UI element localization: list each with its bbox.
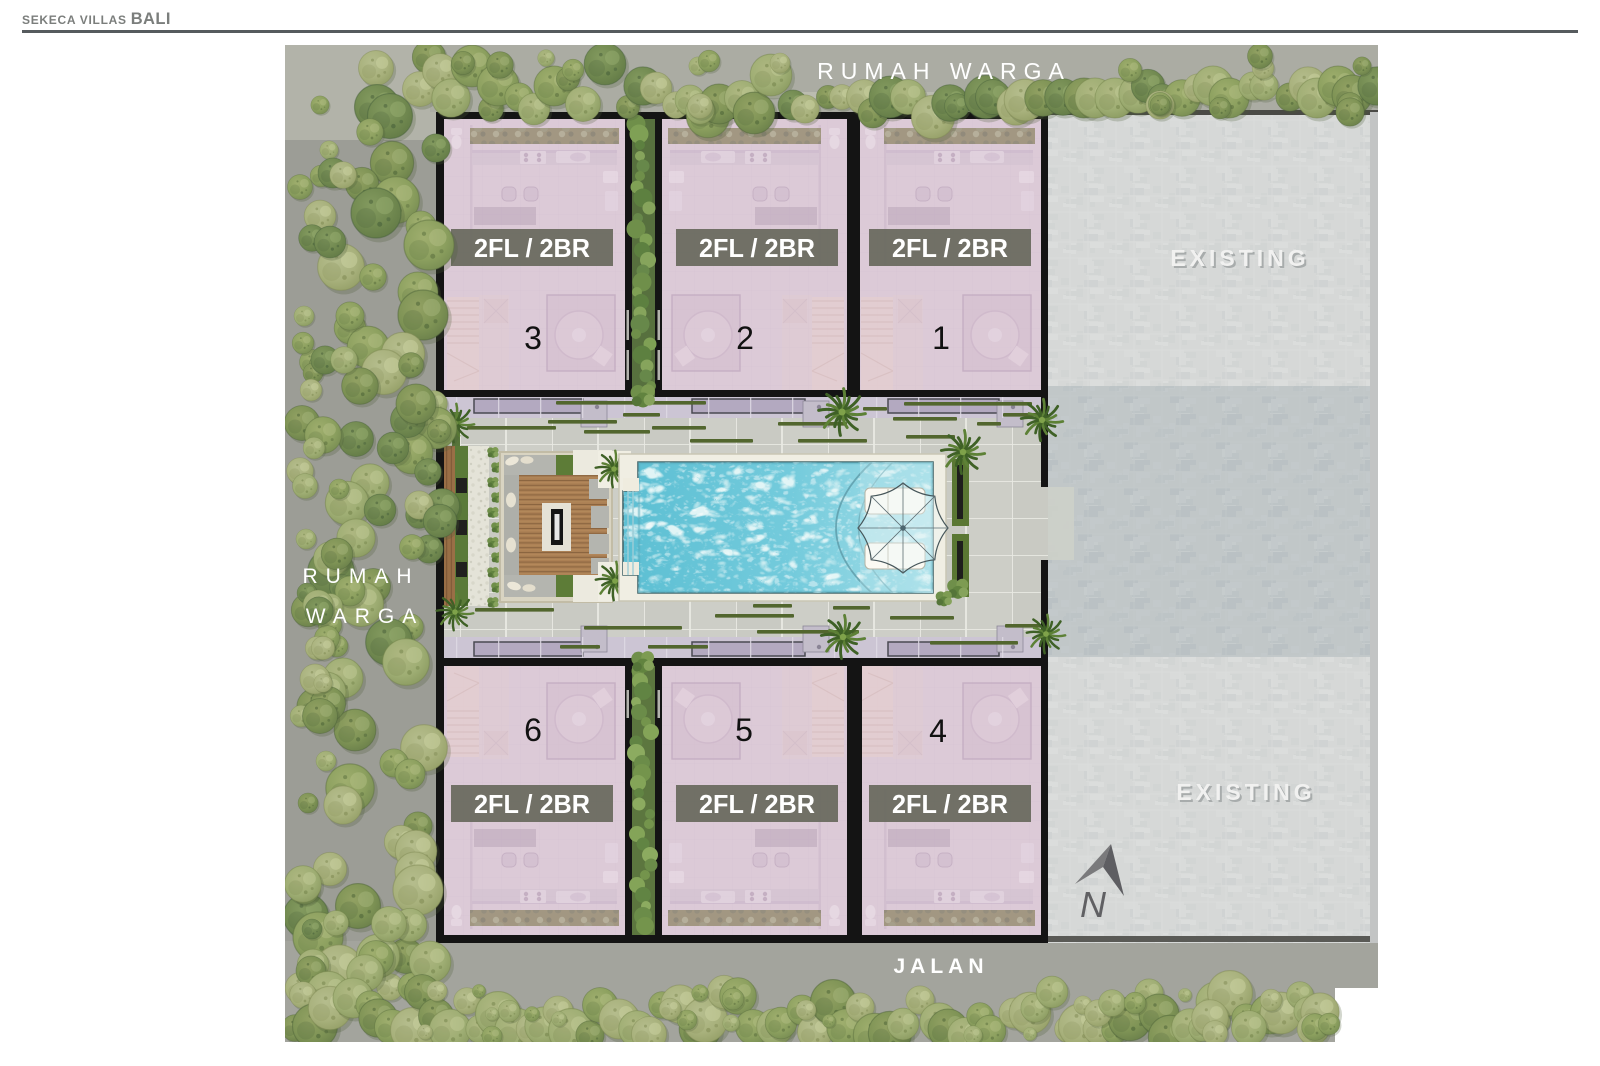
svg-text:6: 6 — [524, 712, 542, 748]
svg-text:4: 4 — [929, 713, 947, 749]
svg-text:RUMAH: RUMAH — [303, 565, 420, 588]
svg-text:2: 2 — [736, 320, 754, 356]
svg-text:2FL / 2BR: 2FL / 2BR — [474, 233, 590, 263]
svg-text:3: 3 — [524, 320, 542, 356]
svg-text:1: 1 — [932, 320, 950, 356]
svg-text:EXISTING: EXISTING — [1176, 779, 1315, 805]
svg-text:EXISTING: EXISTING — [1170, 245, 1309, 271]
svg-text:5: 5 — [735, 712, 753, 748]
svg-text:RUMAH WARGA: RUMAH WARGA — [817, 58, 1071, 84]
svg-text:N: N — [1080, 884, 1107, 925]
svg-text:2FL / 2BR: 2FL / 2BR — [699, 789, 815, 819]
svg-text:2FL / 2BR: 2FL / 2BR — [892, 233, 1008, 263]
svg-text:2FL / 2BR: 2FL / 2BR — [699, 233, 815, 263]
svg-text:2FL / 2BR: 2FL / 2BR — [474, 789, 590, 819]
svg-text:WARGA: WARGA — [306, 605, 425, 628]
svg-text:2FL / 2BR: 2FL / 2BR — [892, 789, 1008, 819]
svg-text:JALAN: JALAN — [893, 955, 988, 978]
